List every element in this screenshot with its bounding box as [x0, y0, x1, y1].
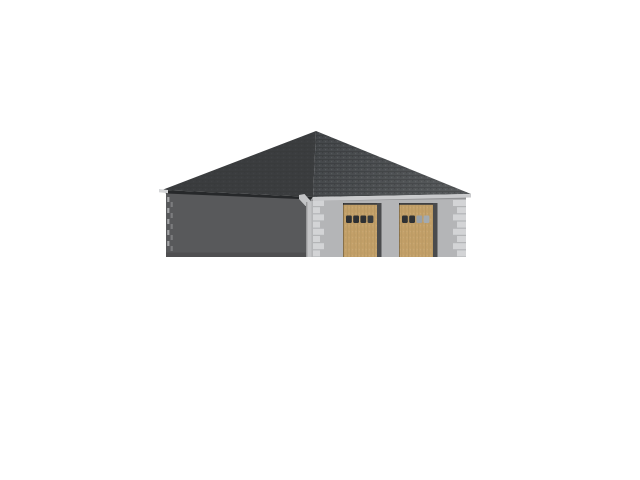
- garage-building: [159, 131, 471, 257]
- door-track-strip: [433, 203, 438, 257]
- door-window: [424, 216, 430, 224]
- shadow-quoin-dash: [171, 235, 173, 240]
- quoin-block: [453, 214, 466, 220]
- door-window: [409, 216, 415, 224]
- quoin-block: [453, 200, 466, 206]
- shadow-quoin-dash: [171, 202, 173, 207]
- door-grain-texture: [343, 203, 377, 257]
- door-window: [368, 216, 374, 224]
- downspout-pipe-shade: [306, 202, 307, 257]
- quoin-block: [457, 250, 466, 256]
- shadow-quoin-dash: [171, 224, 173, 229]
- front-wall: [311, 196, 466, 257]
- quoin-block: [457, 207, 466, 213]
- quoin-block: [453, 229, 466, 235]
- door-left-edge: [343, 203, 344, 257]
- quoin-block: [313, 243, 324, 249]
- door-window: [346, 216, 352, 224]
- door-left-edge: [399, 203, 400, 257]
- quoin-block: [313, 250, 320, 256]
- door-grain-texture: [399, 203, 433, 257]
- door-track-strip: [377, 203, 382, 257]
- shadow-quoin-dash: [167, 197, 169, 202]
- shadow-quoin-dash: [167, 208, 169, 213]
- shadow-quoin-dash: [167, 219, 169, 224]
- shadow-quoin-dash: [171, 213, 173, 218]
- side-wall-base-shadow: [166, 253, 311, 258]
- garage-door-right: [399, 203, 438, 257]
- door-window: [402, 216, 408, 224]
- quoin-block: [457, 222, 466, 228]
- quoin-block: [313, 222, 320, 228]
- shadow-quoin-dash: [171, 246, 173, 251]
- quoin-block: [313, 229, 324, 235]
- quoin-block: [453, 243, 466, 249]
- quoin-block: [457, 236, 466, 242]
- quoin-block: [313, 214, 324, 220]
- quoin-block: [313, 207, 320, 213]
- door-window: [360, 216, 366, 224]
- roof-left-face-texture: [162, 131, 316, 197]
- garage-door-left: [343, 203, 382, 257]
- side-wall: [166, 193, 311, 257]
- door-window: [353, 216, 359, 224]
- shadow-quoin-dash: [167, 230, 169, 235]
- roof-right-face-texture: [313, 131, 471, 197]
- door-window: [416, 216, 422, 224]
- shadow-quoin-dash: [167, 241, 169, 246]
- quoin-block: [313, 236, 320, 242]
- door-header-line: [343, 203, 377, 205]
- door-header-line: [399, 203, 433, 205]
- garage-render: [0, 0, 640, 480]
- render-background: [0, 0, 640, 480]
